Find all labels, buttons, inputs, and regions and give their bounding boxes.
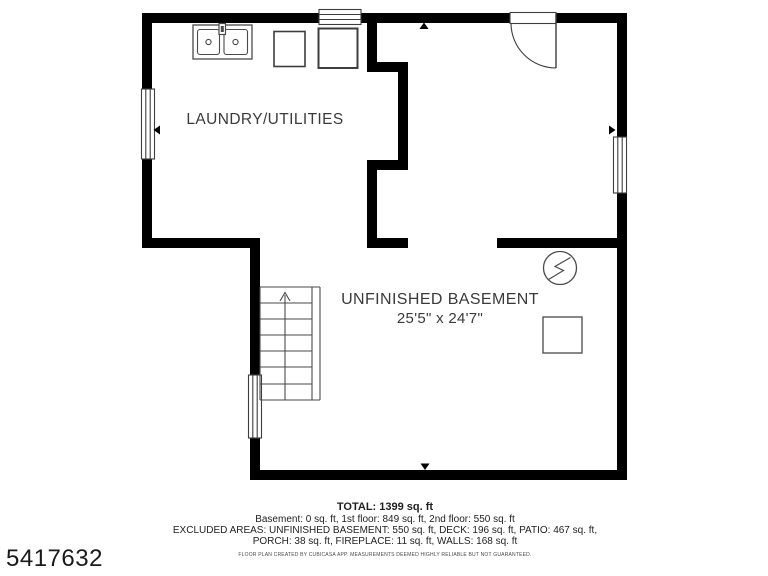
- wall-bottom: [250, 470, 627, 480]
- basement-room-dimensions: 25'5" x 24'7": [340, 310, 540, 329]
- entry-door-icon: [510, 13, 556, 69]
- wall-mid-cap: [367, 238, 408, 248]
- dryer-icon: [319, 29, 358, 69]
- double-sink-icon: [193, 24, 252, 60]
- excluded-areas-line2: PORCH: 38 sq. ft, FIREPLACE: 11 sq. ft, …: [64, 536, 706, 547]
- floor-plan-drawing: [0, 0, 768, 576]
- wall-divider-right: [497, 238, 627, 248]
- wall-mid-bottom: [367, 160, 377, 248]
- storage-box-icon: [543, 317, 582, 353]
- excluded-areas-line1: EXCLUDED AREAS: UNFINISHED BASEMENT: 550…: [64, 525, 706, 536]
- area-summary: TOTAL: 1399 sq. ft Basement: 0 sq. ft, 1…: [64, 501, 706, 558]
- basement-room-label: UNFINISHED BASEMENT 25'5" x 24'7": [340, 290, 540, 329]
- wall-lower-left: [250, 238, 260, 480]
- window-top: [319, 10, 361, 25]
- cubicasa-disclaimer: FLOOR PLAN CREATED BY CUBICASA APP. MEAS…: [64, 552, 706, 558]
- basement-room-name: UNFINISHED BASEMENT: [340, 290, 540, 310]
- marker-bottom-icon: [421, 464, 430, 471]
- floor-plan-page: LAUNDRY/UTILITIES UNFINISHED BASEMENT 25…: [0, 0, 768, 576]
- wall-laundry-bottom: [142, 238, 260, 248]
- laundry-room-label: LAUNDRY/UTILITIES: [172, 110, 358, 129]
- walls: [142, 13, 627, 480]
- electrical-panel-icon: [544, 252, 577, 285]
- staircase-up-icon: [260, 287, 320, 400]
- window-right: [614, 137, 627, 193]
- marker-right-icon: [609, 126, 616, 135]
- listing-id: 5417632: [6, 545, 103, 573]
- marker-top-icon: [420, 23, 429, 30]
- total-area-text: TOTAL: 1399 sq. ft: [64, 501, 706, 514]
- window-left: [142, 89, 155, 159]
- wall-jog-right: [398, 62, 408, 170]
- washer-icon: [274, 32, 305, 67]
- floor-breakdown-text: Basement: 0 sq. ft, 1st floor: 849 sq. f…: [64, 514, 706, 525]
